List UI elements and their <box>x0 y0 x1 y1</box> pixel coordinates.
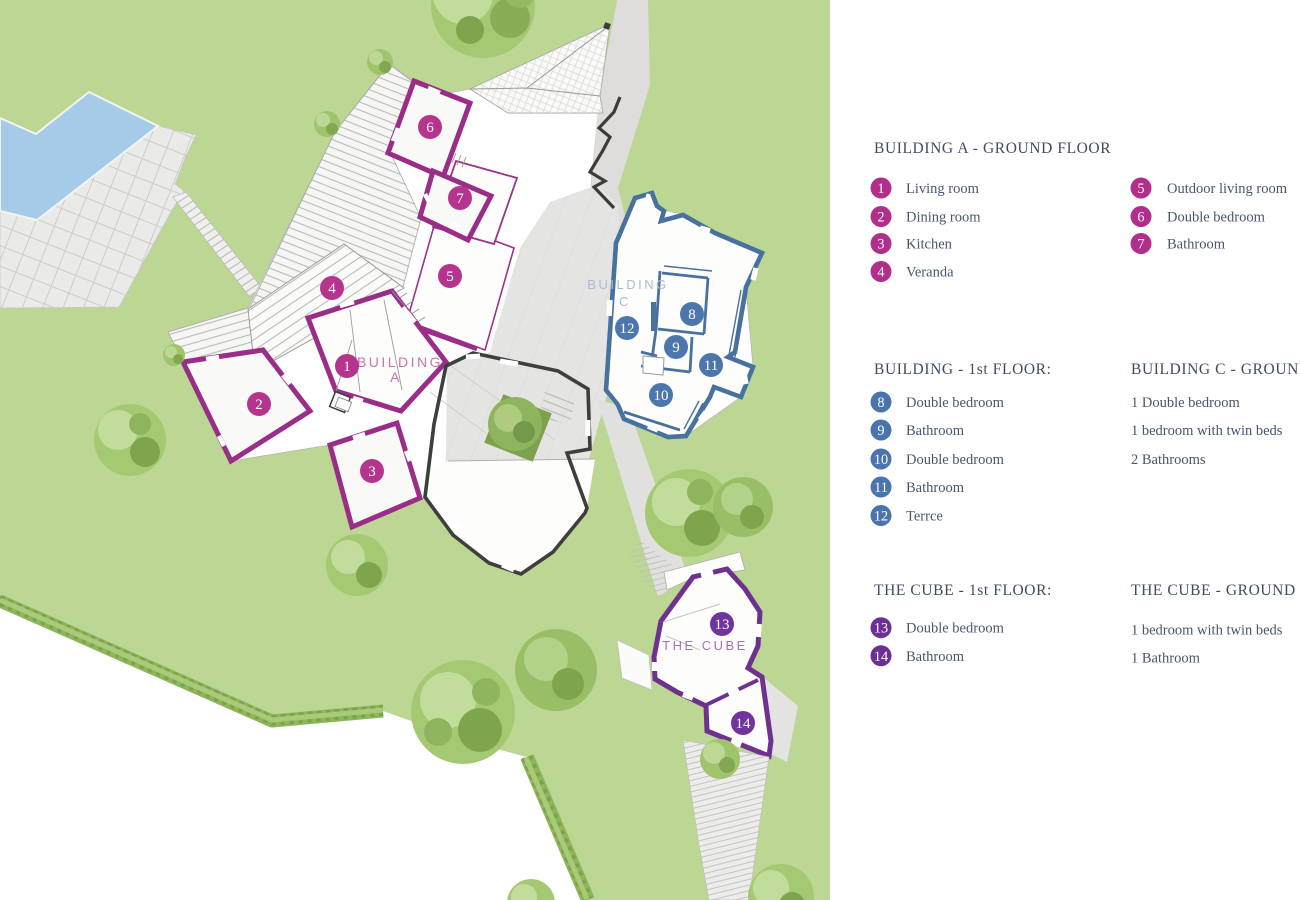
svg-text:Bathroom: Bathroom <box>906 480 965 496</box>
svg-text:BUILDING: BUILDING <box>357 354 443 370</box>
svg-text:Double bedroom: Double bedroom <box>906 621 1005 637</box>
svg-text:1: 1 <box>343 359 351 375</box>
svg-text:9: 9 <box>672 340 680 356</box>
svg-text:Dining room: Dining room <box>906 210 981 226</box>
svg-text:11: 11 <box>704 358 718 374</box>
svg-text:Bathroom: Bathroom <box>1167 237 1226 253</box>
svg-text:6: 6 <box>426 120 434 136</box>
svg-text:THE CUBE - 1st FLOOR:: THE CUBE - 1st FLOOR: <box>874 582 1052 599</box>
svg-text:1 Double bedroom: 1 Double bedroom <box>1131 395 1240 411</box>
svg-text:1: 1 <box>877 181 884 197</box>
svg-text:10: 10 <box>874 452 888 468</box>
svg-text:BUILDING - 1st FLOOR:: BUILDING - 1st FLOOR: <box>874 361 1052 378</box>
svg-text:7: 7 <box>456 191 464 207</box>
svg-text:A: A <box>390 369 402 385</box>
svg-text:Terrce: Terrce <box>906 509 943 525</box>
svg-text:7: 7 <box>1137 237 1144 253</box>
svg-text:8: 8 <box>877 395 884 411</box>
svg-text:13: 13 <box>715 617 730 633</box>
svg-text:6: 6 <box>1137 210 1144 226</box>
svg-text:Living room: Living room <box>906 181 980 197</box>
svg-text:Bathroom: Bathroom <box>906 423 965 439</box>
svg-text:Bathroom: Bathroom <box>906 649 965 665</box>
svg-text:3: 3 <box>368 464 376 480</box>
svg-text:BUILDING: BUILDING <box>587 277 668 292</box>
svg-text:Outdoor living room: Outdoor living room <box>1167 181 1288 197</box>
svg-text:14: 14 <box>874 649 888 665</box>
svg-text:5: 5 <box>446 269 454 285</box>
svg-text:4: 4 <box>877 265 884 281</box>
svg-text:10: 10 <box>654 388 669 404</box>
svg-text:THE CUBE - GROUND FLOOR:: THE CUBE - GROUND FLOOR: <box>1131 582 1300 599</box>
svg-text:Double bedroom: Double bedroom <box>906 452 1005 468</box>
svg-text:Double bedroom: Double bedroom <box>1167 210 1266 226</box>
svg-text:BUILDING C - GROUND FLOOR:: BUILDING C - GROUND FLOOR: <box>1131 361 1300 378</box>
svg-text:2: 2 <box>877 210 884 226</box>
svg-text:3: 3 <box>877 237 884 253</box>
svg-text:THE CUBE: THE CUBE <box>662 638 748 653</box>
svg-text:Kitchen: Kitchen <box>906 237 953 253</box>
svg-text:C: C <box>619 294 631 309</box>
svg-text:Double bedroom: Double bedroom <box>906 395 1005 411</box>
svg-text:5: 5 <box>1137 181 1144 197</box>
svg-text:1 bedroom with twin beds: 1 bedroom with twin beds <box>1131 622 1283 638</box>
svg-text:1 Bathroom: 1 Bathroom <box>1131 651 1201 667</box>
svg-text:8: 8 <box>688 307 696 323</box>
svg-text:9: 9 <box>877 423 884 439</box>
svg-text:4: 4 <box>328 281 336 297</box>
svg-text:14: 14 <box>736 716 752 732</box>
svg-text:BUILDING A - GROUND FLOOR: BUILDING A - GROUND FLOOR <box>874 140 1111 157</box>
svg-text:11: 11 <box>874 480 888 496</box>
svg-text:2 Bathrooms: 2 Bathrooms <box>1131 452 1206 468</box>
svg-text:12: 12 <box>620 321 635 337</box>
svg-text:1 bedroom with twin beds: 1 bedroom with twin beds <box>1131 423 1283 439</box>
svg-text:Veranda: Veranda <box>906 265 954 281</box>
svg-text:13: 13 <box>874 621 888 637</box>
svg-text:12: 12 <box>874 509 888 525</box>
svg-text:2: 2 <box>255 397 263 413</box>
